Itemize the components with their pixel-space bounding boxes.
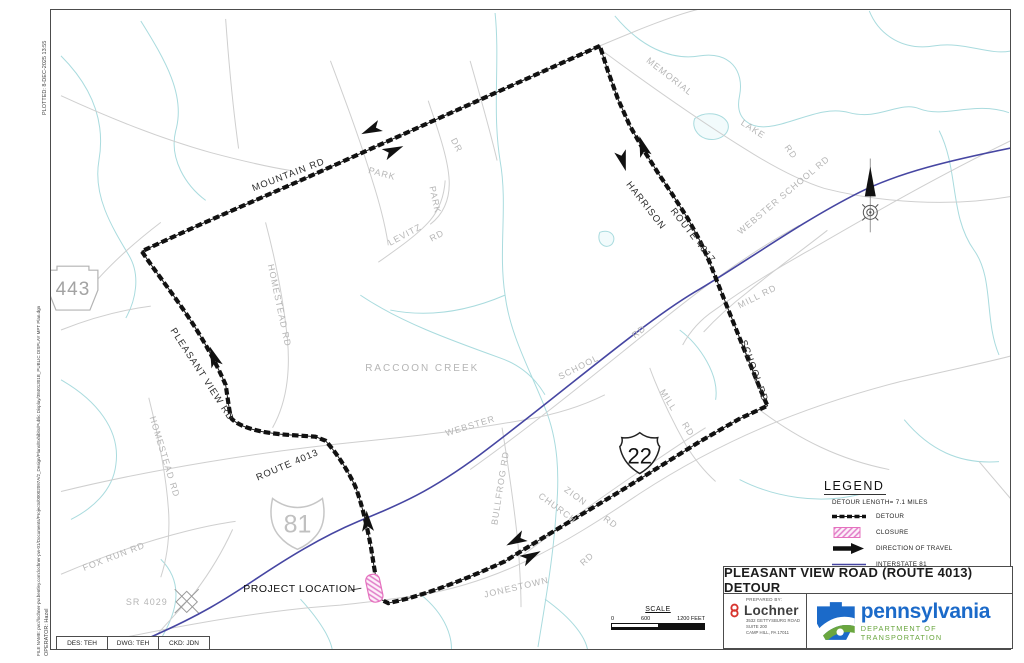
penndot-name: pennsylvania [861, 601, 1012, 622]
svg-text:22: 22 [628, 444, 652, 469]
scale-tick-600: 600 [641, 616, 650, 622]
prepared-by-cell: PREPARED BY: Lochner 3532 GETTYSBURG ROA… [723, 594, 807, 649]
label-jonestown-rd: RD [578, 550, 596, 567]
scale-bar [611, 623, 705, 630]
label-route-4017: ROUTE 4017 [668, 206, 718, 265]
detour-line-swatch [830, 510, 868, 523]
scale-tick-1200: 1200 FEET [677, 616, 705, 622]
lochner-name: Lochner [744, 603, 799, 618]
dwg-cell: DWG: TEH [107, 636, 158, 650]
label-levitz-park: PARK [427, 185, 443, 214]
label-raccoon-creek: RACCOON CREEK [365, 363, 479, 374]
road-labels-black: MOUNTAIN RD PLEASANT VIEW RD ROUTE 4013 … [168, 156, 771, 595]
label-project-location: PROJECT LOCATION [243, 584, 355, 595]
legend-row-detour: DETOUR [830, 510, 994, 523]
legend-row-closure: CLOSURE [830, 526, 994, 539]
legend: LEGEND DETOUR LENGTH= 7.1 MILES DETOUR C… [824, 477, 994, 574]
lochner-address-line3: CAMP HILL, PA 17011 [746, 630, 804, 636]
label-mountain-rd: MOUNTAIN RD [251, 156, 327, 194]
legend-title: LEGEND [824, 479, 886, 495]
scale-ticks: 0 600 1200 FEET [611, 616, 705, 622]
label-bullfrog-rd: BULLFROG RD [489, 450, 511, 525]
legend-label-closure: CLOSURE [876, 529, 909, 536]
label-mill: MILL [658, 387, 679, 413]
scale-block: SCALE 0 600 1200 FEET [611, 606, 705, 630]
direction-arrow-icon [382, 141, 406, 160]
shield-pa-443: 443 [51, 266, 98, 310]
svg-text:81: 81 [284, 510, 312, 538]
title-block: PLEASANT VIEW ROAD (ROUTE 4013) DETOUR P… [723, 566, 1013, 649]
legend-detour-length: DETOUR LENGTH= 7.1 MILES [832, 499, 994, 506]
penndot-cell: pennsylvania DEPARTMENT OF TRANSPORTATIO… [807, 594, 1013, 649]
lochner-logo-icon [728, 603, 741, 618]
drawing-credit-cells: DES: TEH DWG: TEH CKD: JDN [56, 636, 210, 650]
label-levitz-rd: RD [428, 228, 446, 244]
sheet-title: PLEASANT VIEW ROAD (ROUTE 4013) DETOUR [723, 566, 1013, 594]
lochner-address-line1: 3532 GETTYSBURG ROAD [746, 618, 804, 624]
legend-label-direction: DIRECTION OF TRAVEL [876, 545, 953, 552]
label-school-rd-detour: SCHOOL RD [738, 339, 771, 404]
scale-title: SCALE [611, 606, 705, 613]
closure-swatch [830, 526, 868, 539]
direction-arrow-icon [614, 149, 631, 172]
label-zion: ZION [562, 485, 588, 508]
shield-us22: 22 [620, 433, 660, 474]
penndot-keystone-icon [817, 600, 855, 642]
label-lake: LAKE [739, 118, 767, 141]
label-homestead-rd-upper: HOMESTEAD RD [266, 263, 293, 347]
scale-bar-right [658, 624, 704, 629]
label-harrison: HARRISON [624, 180, 668, 232]
file-name-stamp: FILE NAME: pw://lochner-pw.bentley.com:l… [36, 306, 41, 656]
label-homestead-rd-lower: HOMESTEAD RD [148, 415, 182, 498]
svg-text:443: 443 [56, 279, 91, 300]
legend-row-direction: DIRECTION OF TRAVEL [830, 542, 994, 555]
label-memorial: MEMORIAL [644, 55, 694, 97]
plotted-stamp: PLOTTED: 8-DEC-2025 13:55 [42, 41, 48, 115]
label-lake-rd: RD [783, 143, 800, 161]
interchange-icon [175, 589, 199, 613]
plan-sheet: PLOTTED: 8-DEC-2025 13:55 FILE NAME: pw:… [0, 0, 1024, 663]
label-jonestown: JONESTOWN [483, 575, 550, 600]
des-cell: DES: TEH [56, 636, 107, 650]
direction-arrow-swatch [830, 542, 868, 555]
label-fox-run-rd: FOX RUN RD [81, 540, 146, 573]
legend-label-detour: DETOUR [876, 513, 904, 520]
label-zion-church-rd: RD [602, 514, 620, 531]
closure-hatch [365, 573, 384, 603]
prepared-by-label: PREPARED BY: [746, 597, 804, 602]
scale-bar-left [612, 624, 658, 629]
label-park-dr: DR [449, 136, 465, 154]
scale-tick-0: 0 [611, 616, 614, 622]
label-route-4013: ROUTE 4013 [255, 447, 321, 483]
north-arrow-icon [865, 159, 876, 233]
label-webster-school-rd: WEBSTER SCHOOL RD [736, 154, 832, 237]
ckd-cell: CKD: JDN [158, 636, 210, 650]
direction-arrow-icon [359, 120, 383, 139]
label-sr-4029: SR 4029 [126, 597, 168, 607]
penndot-subtitle: DEPARTMENT OF TRANSPORTATION [861, 624, 1012, 642]
